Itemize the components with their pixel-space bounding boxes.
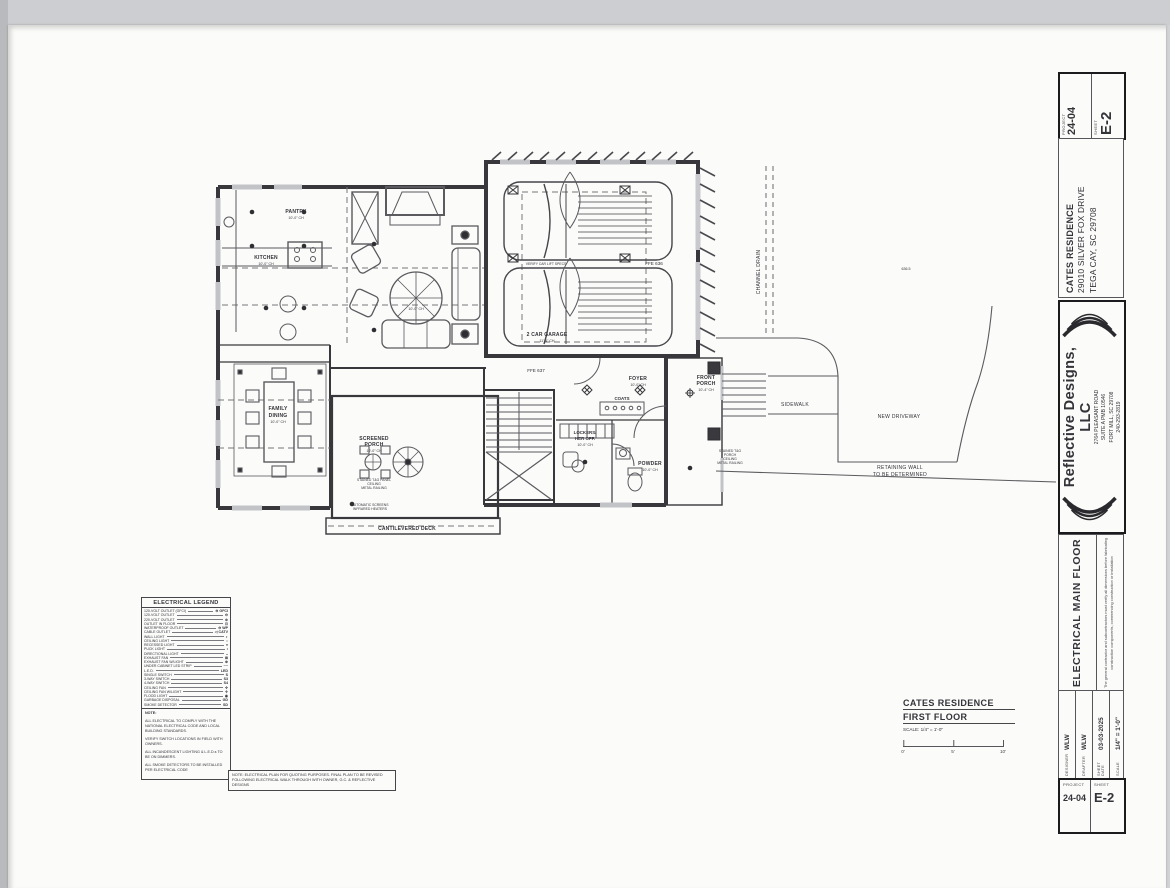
scale-bar-tick: 10' <box>1000 749 1006 754</box>
foyer-ch: 10'-0" CH <box>630 383 646 387</box>
legend-leader-line <box>170 657 223 658</box>
garage-label: 2 CAR GARAGE <box>527 332 568 338</box>
project-label-bottom: PROJECT <box>1063 782 1087 787</box>
driveway-label: NEW DRIVEWAY <box>878 414 921 420</box>
firm-email: WENDY@REFLECTIVE-DESIGNS.COM <box>1124 336 1126 498</box>
meta-label: SCALE <box>1116 750 1120 776</box>
titleblock-bottom-project-sheet: PROJECT 24-04 SHEET E-2 <box>1058 778 1126 834</box>
titleblock-client: CATES RESIDENCE 29010 SILVER FOX DRIVE T… <box>1058 138 1124 298</box>
porch-steps <box>722 374 838 416</box>
titleblock-disclaimer: The general contractor and subcontractor… <box>1096 534 1124 692</box>
legend-title: ELECTRICAL LEGEND <box>142 598 230 608</box>
meta-value: 03-03-2025 <box>1098 717 1105 750</box>
legend-note: ALL SMOKE DETECTORS TO BE INSTALLED PER … <box>145 763 227 773</box>
titleblock-sheet-title: ELECTRICAL MAIN FLOOR <box>1058 534 1098 692</box>
legend-leader-line <box>171 640 224 641</box>
client-name: CATES RESIDENCE <box>1065 143 1075 293</box>
legend-leader-line <box>177 615 223 616</box>
scale-bar-tick: 5' <box>951 749 954 754</box>
scale-bar: 0' 5' 10' <box>903 746 1003 747</box>
legend-leader-line <box>186 662 223 663</box>
legend-note-label: NOTE: <box>145 711 227 716</box>
driveway-outline <box>716 306 1056 482</box>
meta-row: DESIGNER WLW <box>1059 691 1076 779</box>
legend-row: SMOKE DETECTOR SD <box>142 703 230 707</box>
stained-note-4: METAL RAILING <box>717 461 743 465</box>
drawing-title-line2: FIRST FLOOR <box>903 712 1015 724</box>
ffe-main: FFE 637 <box>527 368 545 373</box>
coats-label: COATS <box>614 396 629 401</box>
legend-leader-line <box>188 611 213 612</box>
sheet-number-bottom: E-2 <box>1094 790 1121 805</box>
legend-leader-line <box>169 696 223 697</box>
firm-address-2: SUITE A PMB 10546 <box>1101 336 1108 498</box>
legend-leader-line <box>156 670 219 671</box>
garage-ch: 11'-4" CH <box>539 339 554 343</box>
legend-leader-line <box>167 636 224 637</box>
client-address-2: TEGA CAY, SC 29708 <box>1087 143 1099 293</box>
firm-name: Reflective Designs, LLC <box>1062 336 1094 498</box>
legend-leader-line <box>167 649 225 650</box>
stairs <box>486 392 552 500</box>
sheet-label-bottom: SHEET <box>1094 782 1121 787</box>
screened-ch: 10'-0" CH <box>366 449 382 453</box>
screened-label-2: PORCH <box>364 442 383 448</box>
foyer-label: FOYER <box>629 376 647 382</box>
car <box>504 182 672 260</box>
living-ch: 10'-0" CH <box>408 307 424 311</box>
contour-elevation: 636.5 <box>902 267 911 271</box>
meta-label: DRAFTER <box>1082 750 1086 776</box>
lockers-ch: 10'-0" CH <box>577 443 593 447</box>
garage-fixtures <box>508 186 630 262</box>
legend-note: VERIFY SWITCH LOCATIONS IN FIELD WITH OW… <box>145 737 227 747</box>
drawing-title-line1: CATES RESIDENCE <box>903 698 1015 710</box>
legend-note: ALL INCANDESCENT LIGHTING & L.E.D.s TO B… <box>145 750 227 760</box>
garage-door-swings <box>560 172 580 316</box>
retaining-label-1: RETAINING WALL <box>877 465 923 471</box>
meta-row: DRAFTER WLW <box>1076 691 1093 779</box>
meta-value: WLW <box>1081 734 1088 750</box>
scale-bar-tick: 0' <box>901 749 904 754</box>
legend-notes: NOTE: ALL ELECTRICAL TO COMPLY WITH THE … <box>142 708 230 780</box>
legend-leader-line <box>182 700 221 701</box>
screened-note-3: METAL RAILING <box>361 486 387 490</box>
legend-items: 120-VOLT OUTLET (GFCI) ⊖ GFCI 120-VOLT O… <box>142 608 230 708</box>
firm-address-3: FORT MILL, SC 29708 <box>1109 336 1116 498</box>
legend-leader-line <box>177 619 223 620</box>
legend-leader-line <box>171 683 221 684</box>
legend-leader-line <box>181 653 224 654</box>
legend-leader-line <box>194 666 222 667</box>
auto-screens-note-2: INFRARED HEATERS <box>353 507 388 511</box>
legend-leader-line <box>168 687 223 688</box>
family-label-2: DINING <box>269 413 288 419</box>
drawing-scale: SCALE: 1/4" = 1'-0" <box>903 727 1023 732</box>
kitchen-label: KITCHEN <box>254 255 278 261</box>
car-lift-note: VERIFY CAR LIFT SPECS <box>526 262 567 266</box>
firm-phone: 240-293-2819 <box>1116 336 1123 498</box>
legend-leader-line <box>185 628 216 629</box>
ffe-garage: FFE 636 <box>645 261 663 266</box>
firm-logo-arc <box>1060 496 1119 530</box>
lockers-label-2: HER OFF. <box>575 436 595 441</box>
legend-note: ALL ELECTRICAL TO COMPLY WITH THE NATION… <box>145 719 227 733</box>
deck-label: CANTILEVERED DECK <box>378 526 436 532</box>
drawing-title-block: CATES RESIDENCE FIRST FLOOR SCALE: 1/4" … <box>903 698 1023 747</box>
family-ch: 10'-0" CH <box>270 420 286 424</box>
electrical-legend: ELECTRICAL LEGEND 120-VOLT OUTLET (GFCI)… <box>141 597 231 780</box>
meta-row: SHEET DATE 03-03-2025 <box>1093 691 1110 779</box>
titleblock-firm: Reflective Designs, LLC 2764 PLEASANT RO… <box>1058 300 1126 534</box>
powder-ch: 10'-0" CH <box>642 468 658 472</box>
meta-value: 1/4" = 1'-0" <box>1115 717 1122 750</box>
firm-address-1: 2764 PLEASANT ROAD <box>1094 336 1101 498</box>
meta-value: WLW <box>1064 734 1071 750</box>
porch-columns <box>685 362 720 440</box>
titleblock-top-project-sheet: PROJECT 24-04 SHEET E-2 <box>1058 72 1126 140</box>
kitchen-ch: 10'-0" CH <box>258 262 274 266</box>
powder-label: POWDER <box>638 461 662 467</box>
legend-leader-line <box>179 704 221 705</box>
meta-label: SHEET DATE <box>1097 750 1105 776</box>
project-number: 24-04 <box>1066 77 1078 135</box>
legend-leader-line <box>177 645 224 646</box>
client-address-1: 29010 SILVER FOX DRIVE <box>1075 143 1087 293</box>
family-label-1: FAMILY <box>268 406 288 412</box>
firm-logo-arc <box>1060 304 1119 338</box>
sidewalk-label: SIDEWALK <box>781 402 809 408</box>
lockers-label-1: LOCKERS/ <box>574 430 597 435</box>
front-porch-ch: 10'-4" CH <box>698 388 714 392</box>
legend-leader-line <box>171 679 221 680</box>
legend-leader-line <box>177 623 223 624</box>
legend-item-label: SMOKE DETECTOR <box>144 703 177 707</box>
legend-leader-line <box>183 691 223 692</box>
channel-drain-label: CHANNEL DRAIN <box>756 250 762 295</box>
legend-item-symbol: SD <box>223 703 228 707</box>
meta-row: SCALE 1/4" = 1'-0" <box>1110 691 1124 779</box>
sheet-title: ELECTRICAL MAIN FLOOR <box>1071 539 1083 687</box>
meta-label: DESIGNER <box>1065 750 1069 776</box>
sheet-number: E-2 <box>1098 77 1115 135</box>
legend-leader-line <box>172 632 212 633</box>
plan-labels: PANTRY 10'-0" CH KITCHEN 10'-0" CH 10'-0… <box>254 209 927 532</box>
retaining-label-2: TO BE DETERMINED <box>873 472 927 478</box>
front-porch-label-2: PORCH <box>696 381 715 387</box>
pantry-ch: 10'-0" CH <box>288 216 304 220</box>
pantry-label: PANTRY <box>285 209 307 215</box>
channel-drain <box>766 166 773 336</box>
project-number-bottom: 24-04 <box>1063 793 1087 803</box>
disclaimer-text: The general contractor and subcontractor… <box>1103 535 1114 691</box>
plan-footnote: NOTE: ELECTRICAL PLAN FOR QUOTING PURPOS… <box>228 770 396 791</box>
titleblock-meta: DESIGNER WLW DRAFTER WLW SHEET DATE 03-0… <box>1058 690 1124 780</box>
legend-leader-line <box>174 674 224 675</box>
